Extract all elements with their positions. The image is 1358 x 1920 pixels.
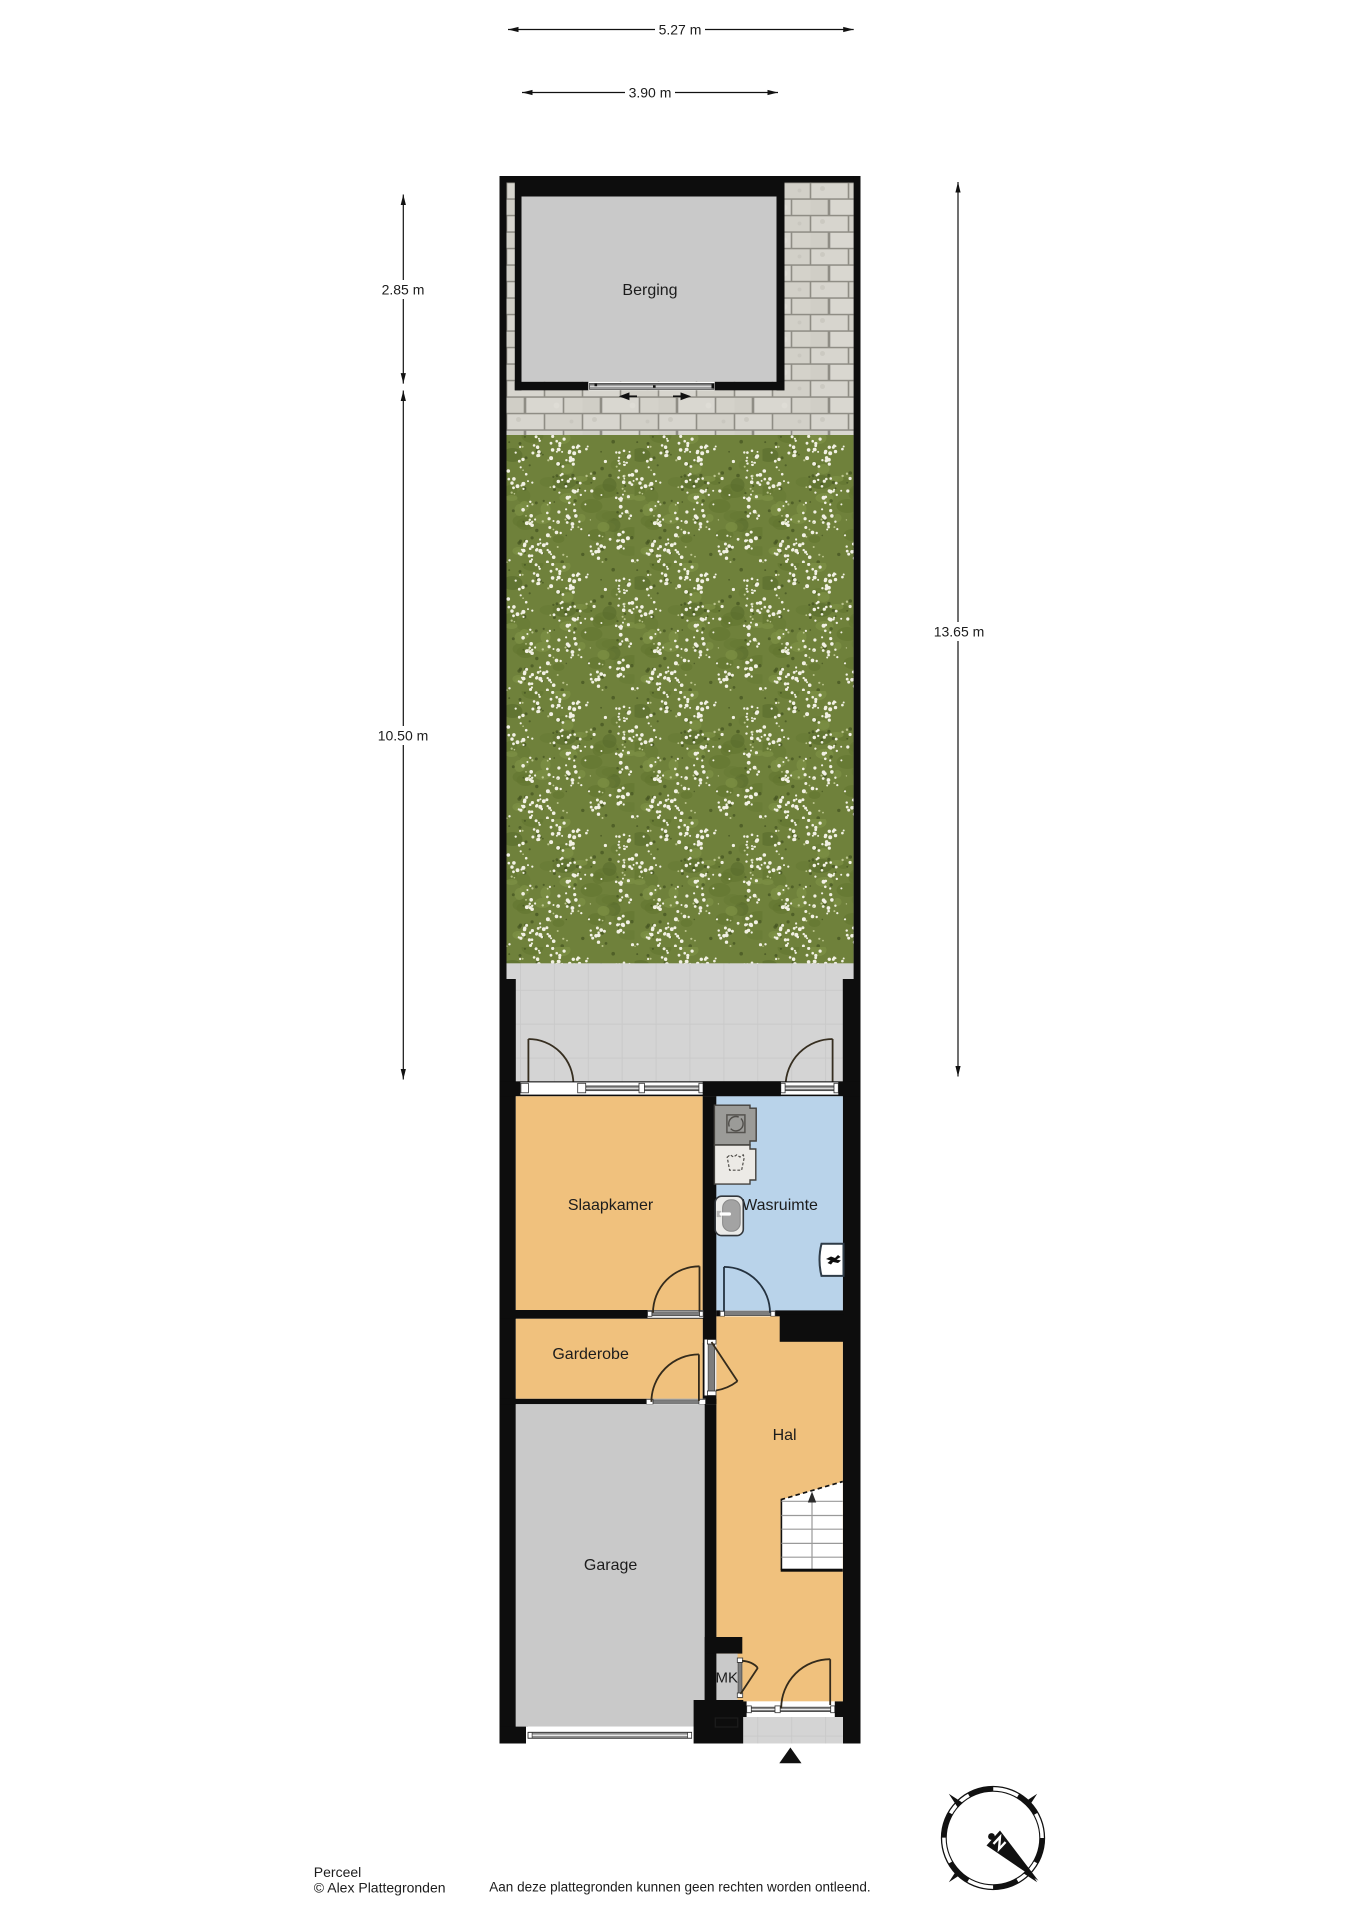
svg-text:MK: MK [716, 1670, 739, 1687]
svg-text:Berging: Berging [622, 282, 677, 299]
svg-text:Garage: Garage [584, 1557, 637, 1574]
svg-text:Aan deze plattegronden kunnen: Aan deze plattegronden kunnen geen recht… [489, 1880, 870, 1895]
svg-text:13.65 m: 13.65 m [934, 624, 985, 640]
svg-text:Garderobe: Garderobe [552, 1346, 629, 1363]
svg-text:Wasruimte: Wasruimte [742, 1197, 818, 1214]
svg-text:3.90 m: 3.90 m [629, 85, 672, 101]
svg-text:Perceel: Perceel [314, 1864, 361, 1880]
svg-text:2.85 m: 2.85 m [382, 282, 425, 298]
svg-text:Slaapkamer: Slaapkamer [568, 1197, 654, 1214]
svg-text:5.27 m: 5.27 m [659, 22, 702, 38]
svg-text:10.50 m: 10.50 m [378, 728, 429, 744]
svg-text:Hal: Hal [773, 1427, 797, 1444]
svg-text:© Alex Plattegronden: © Alex Plattegronden [314, 1880, 446, 1896]
